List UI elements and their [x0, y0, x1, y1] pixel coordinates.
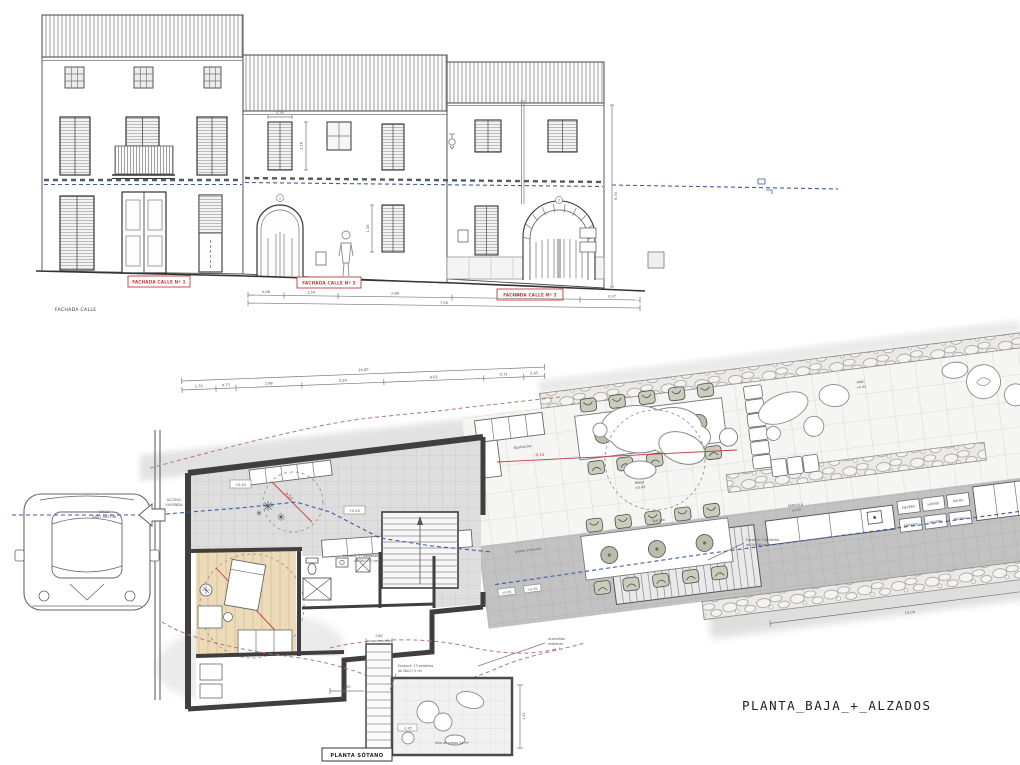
svg-text:2,88: 2,88: [391, 292, 400, 296]
garden-strip: Barbacoa Mesa +0.45 Terraza piedra exist…: [459, 320, 1020, 668]
svg-text:de 30x16 cm: de 30x16 cm: [746, 543, 767, 547]
svg-text:6,30: 6,30: [614, 191, 618, 200]
facade-2-roof: [243, 55, 447, 111]
survey-mark-icon: [758, 179, 765, 184]
basement-plan: acometida existente Escalera: 13 peldaño…: [322, 634, 565, 761]
basement-level: -2,45: [403, 726, 411, 730]
ground-floor-plan: Barbacoa Mesa +0.45 Terraza piedra exist…: [12, 320, 1020, 713]
plant-icon: [277, 513, 285, 521]
street-name: CALLE: [98, 510, 110, 514]
plant-icon: [263, 501, 273, 511]
context-box: [648, 252, 664, 268]
main-stair: [382, 512, 458, 588]
svg-text:8,15: 8,15: [535, 452, 545, 457]
facade-label-2: FACHADA CALLE Nº 2: [297, 277, 361, 288]
elevation-dim-chain: 0,68 1,54 2,88 2,43 0,37 7,90: [248, 290, 640, 311]
stair-note: Escalera: 17 peldaños: [343, 554, 378, 558]
furniture: [200, 664, 222, 680]
car-top-view: [15, 494, 159, 610]
svg-text:0,90: 0,90: [276, 111, 285, 115]
svg-text:existente: existente: [548, 642, 563, 646]
street-elevations: 1 0,90 1,18 1,16: [36, 15, 838, 313]
svg-text:1,35: 1,35: [195, 384, 203, 388]
svg-text:2,98: 2,98: [265, 381, 274, 385]
utility-box: [316, 252, 326, 265]
svg-text:PLANTA SÓTANO: PLANTA SÓTANO: [330, 752, 383, 759]
svg-text:de 28x17,5 cm: de 28x17,5 cm: [354, 559, 378, 563]
basement-stair: [366, 644, 392, 756]
svg-text:de 28x17,5 cm: de 28x17,5 cm: [398, 669, 422, 673]
house-plan: 6,40 +0.40 4,50: [188, 437, 483, 709]
svg-text:VIVIENDA: VIVIENDA: [165, 503, 183, 507]
elevation-caption: FACHADA CALLE: [55, 307, 96, 313]
level-salon: +0.45: [349, 509, 360, 513]
svg-text:15,04: 15,04: [905, 610, 916, 615]
balcony-railing: [115, 146, 173, 174]
sheet-title: PLANTA_BAJA_+_ALZADOS: [742, 698, 932, 713]
context-blue-line: [612, 185, 838, 189]
level-entry: +0.40: [235, 483, 247, 487]
shower-symbol-icon: [200, 584, 212, 596]
svg-text:1,54: 1,54: [307, 291, 316, 295]
door-number: 2: [558, 199, 560, 203]
svg-text:14,60: 14,60: [358, 368, 369, 372]
svg-text:0,68: 0,68: [262, 290, 271, 294]
plan-dim-chain: 14,60 1,35 0,73 2,98 3,29 4,02 0,72 2,45: [181, 361, 544, 393]
svg-text:7,90: 7,90: [440, 301, 449, 305]
svg-text:1,16: 1,16: [366, 224, 370, 233]
svg-text:Escalera: 7 peldaños: Escalera: 7 peldaños: [746, 538, 779, 542]
svg-text:0,80: 0,80: [375, 634, 382, 638]
street: CALLE SANT ANTONI: [15, 430, 160, 700]
svg-text:FACHADA CALLE Nº 2: FACHADA CALLE Nº 2: [302, 281, 355, 286]
furniture: [200, 684, 222, 698]
svg-text:0,37: 0,37: [608, 295, 616, 299]
access-label: ACCESO: [167, 498, 182, 502]
svg-text:0,72: 0,72: [500, 372, 508, 376]
utility-box: [458, 230, 468, 242]
svg-text:3,29: 3,29: [339, 379, 348, 383]
drawing-sheet: 1 0,90 1,18 1,16: [0, 0, 1020, 765]
svg-text:2,45: 2,45: [522, 712, 526, 719]
facade-1-roof: [42, 15, 243, 57]
closet: [238, 630, 292, 654]
facade-3-roof: [447, 62, 604, 103]
basement-caption: PLANTA SÓTANO: [322, 748, 392, 761]
facade-1-upper-windows: [60, 117, 227, 179]
drawing-canvas: 1 0,90 1,18 1,16: [0, 0, 1020, 765]
svg-text:1,18: 1,18: [300, 141, 304, 150]
basement-room-label: Sala de juegos 48 m²: [435, 741, 470, 745]
svg-text:4,02: 4,02: [430, 375, 438, 379]
svg-text:1,50: 1,50: [343, 685, 350, 689]
basement-stair-note: Escalera: 13 peldaños: [398, 664, 433, 668]
door-number: 1: [279, 197, 281, 201]
survey-mark-icon: [766, 190, 772, 194]
acometida-label: acometida: [548, 637, 565, 641]
desk: [198, 606, 222, 628]
svg-text:2,45: 2,45: [530, 371, 538, 375]
svg-text:FACHADA CALLE Nº 1: FACHADA CALLE Nº 1: [132, 280, 185, 285]
bed: [224, 559, 265, 610]
svg-text:SANT ANTONI: SANT ANTONI: [92, 515, 117, 519]
svg-text:2,43: 2,43: [512, 293, 520, 297]
chair-icon: [224, 613, 233, 622]
svg-text:0,73: 0,73: [222, 383, 230, 387]
facade-label-1: FACHADA CALLE Nº 1: [128, 276, 190, 287]
